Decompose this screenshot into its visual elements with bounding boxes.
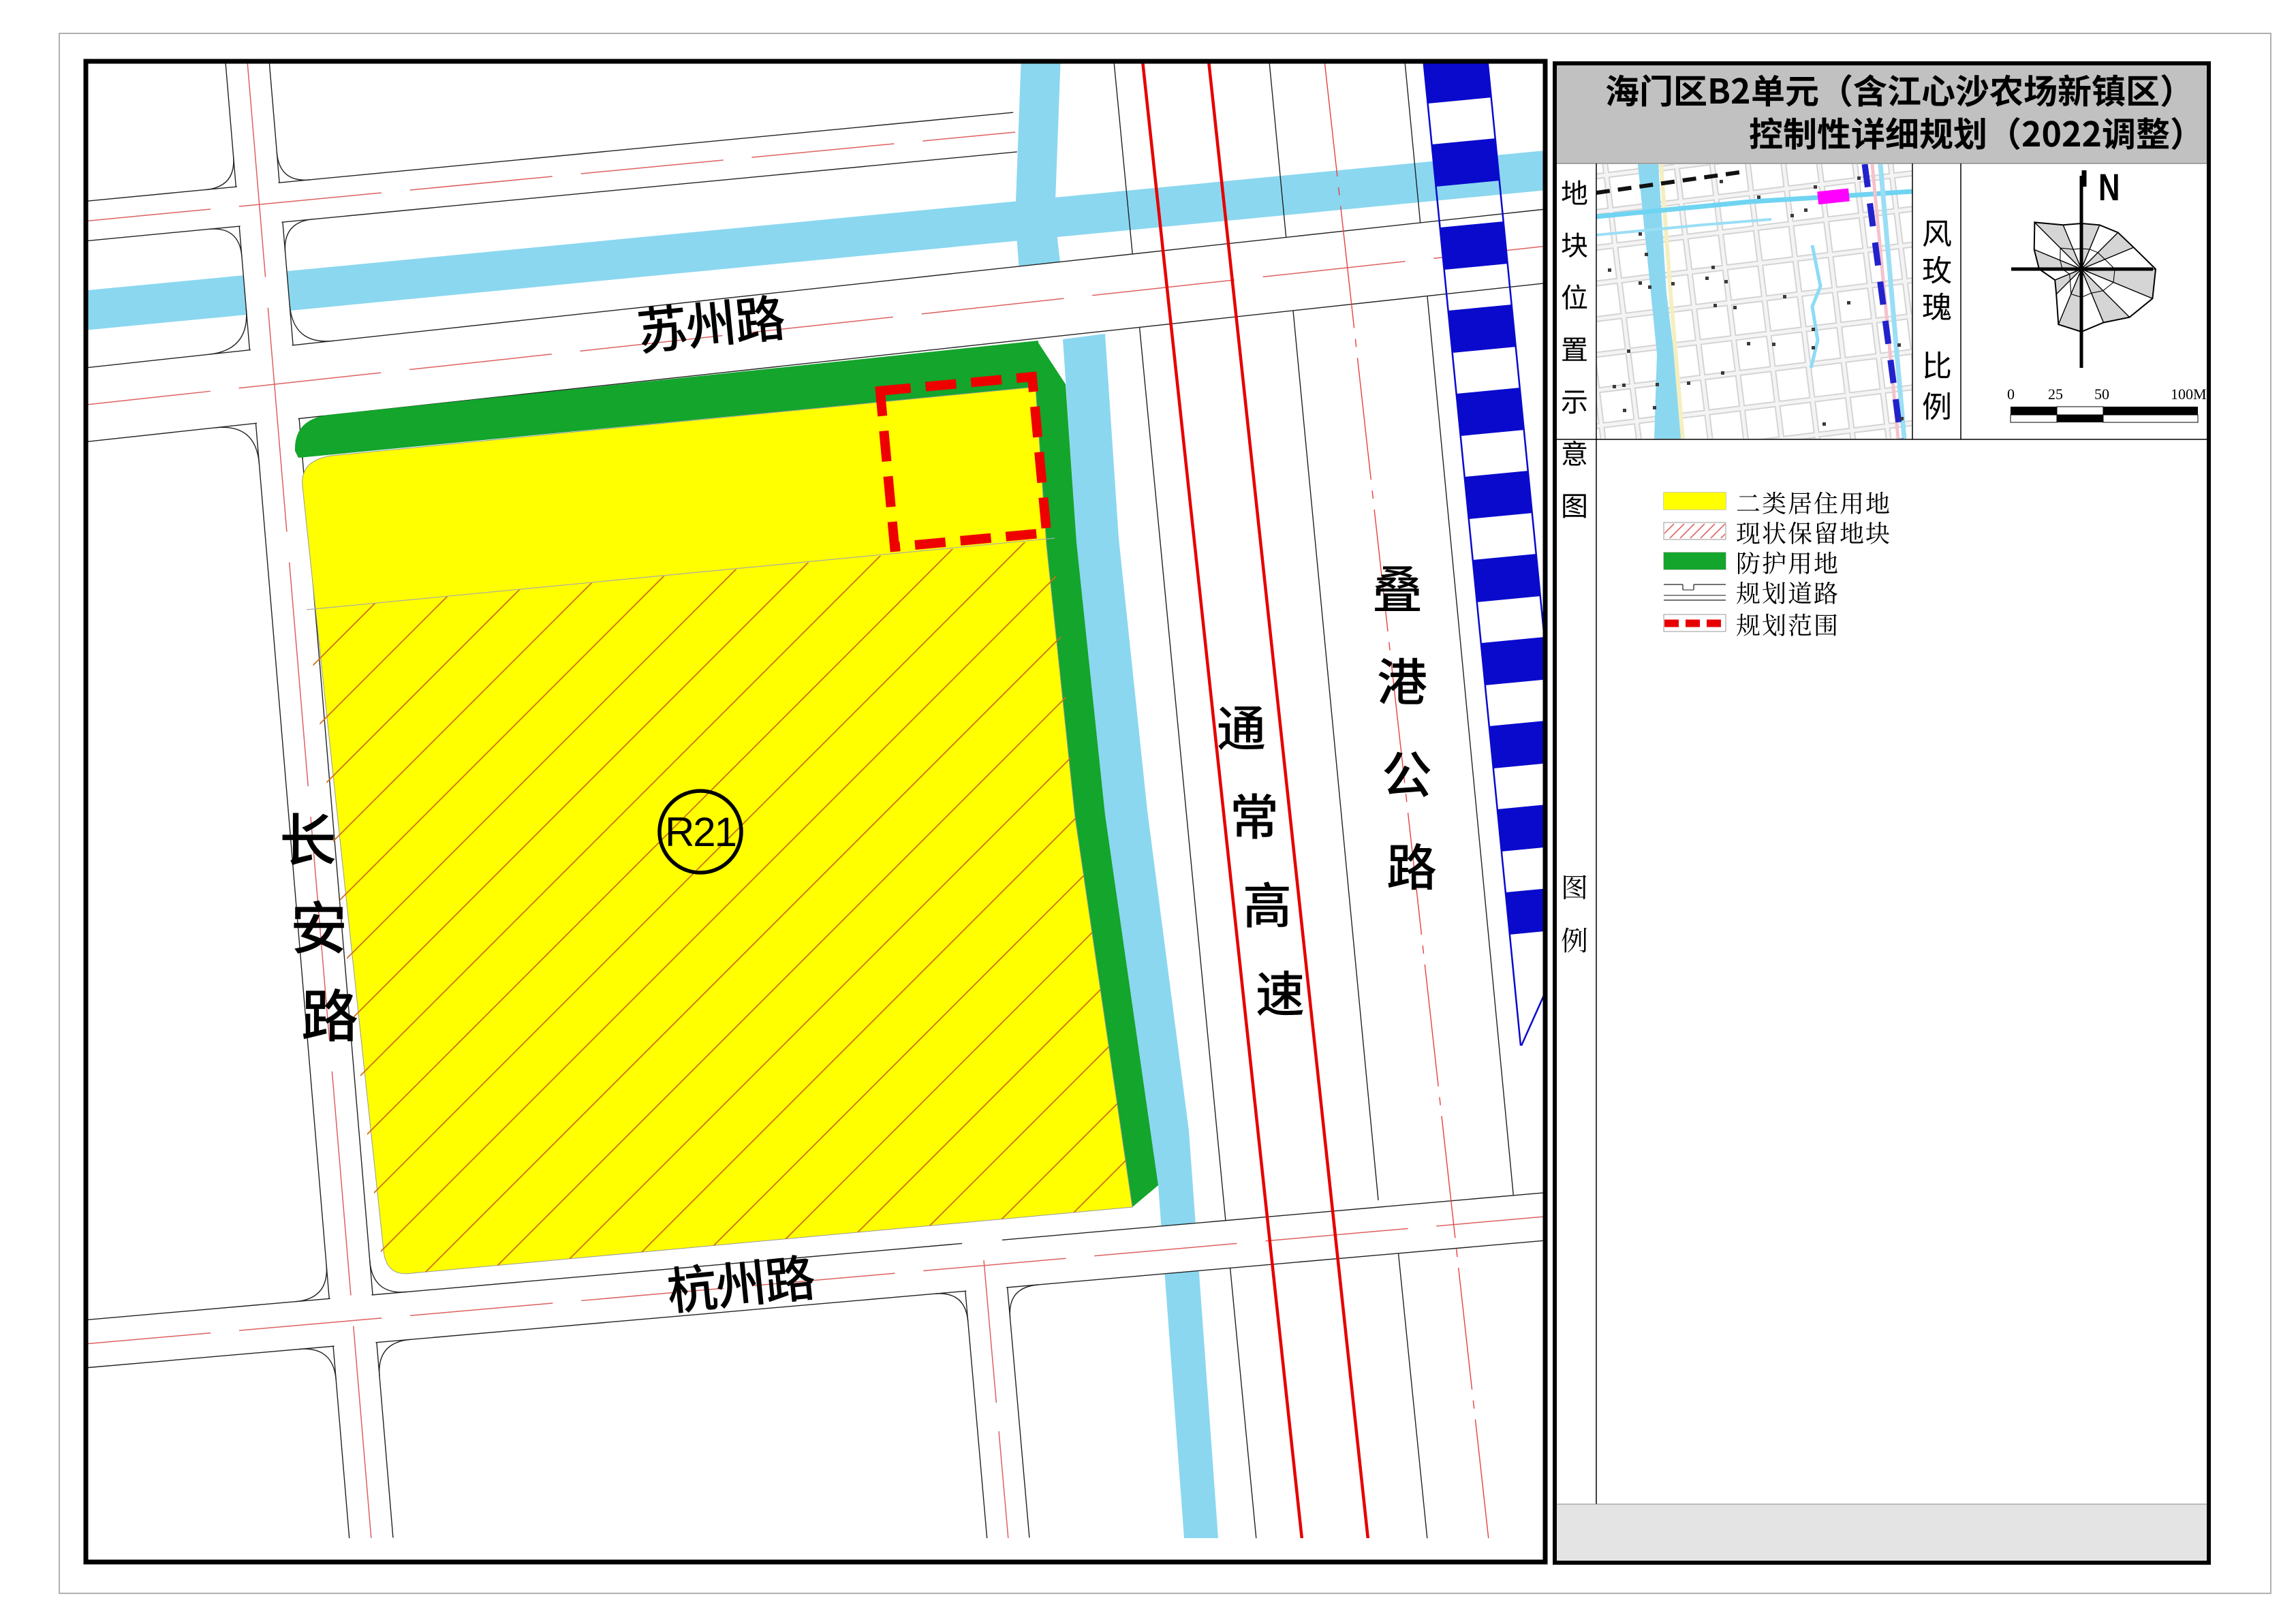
svg-text:R21: R21 [665, 809, 736, 855]
svg-text:0: 0 [2007, 386, 2015, 403]
svg-text:25: 25 [2048, 386, 2063, 403]
svg-text:50: 50 [2094, 386, 2109, 403]
svg-text:100M: 100M [2171, 386, 2207, 403]
svg-text:N: N [2098, 166, 2120, 208]
